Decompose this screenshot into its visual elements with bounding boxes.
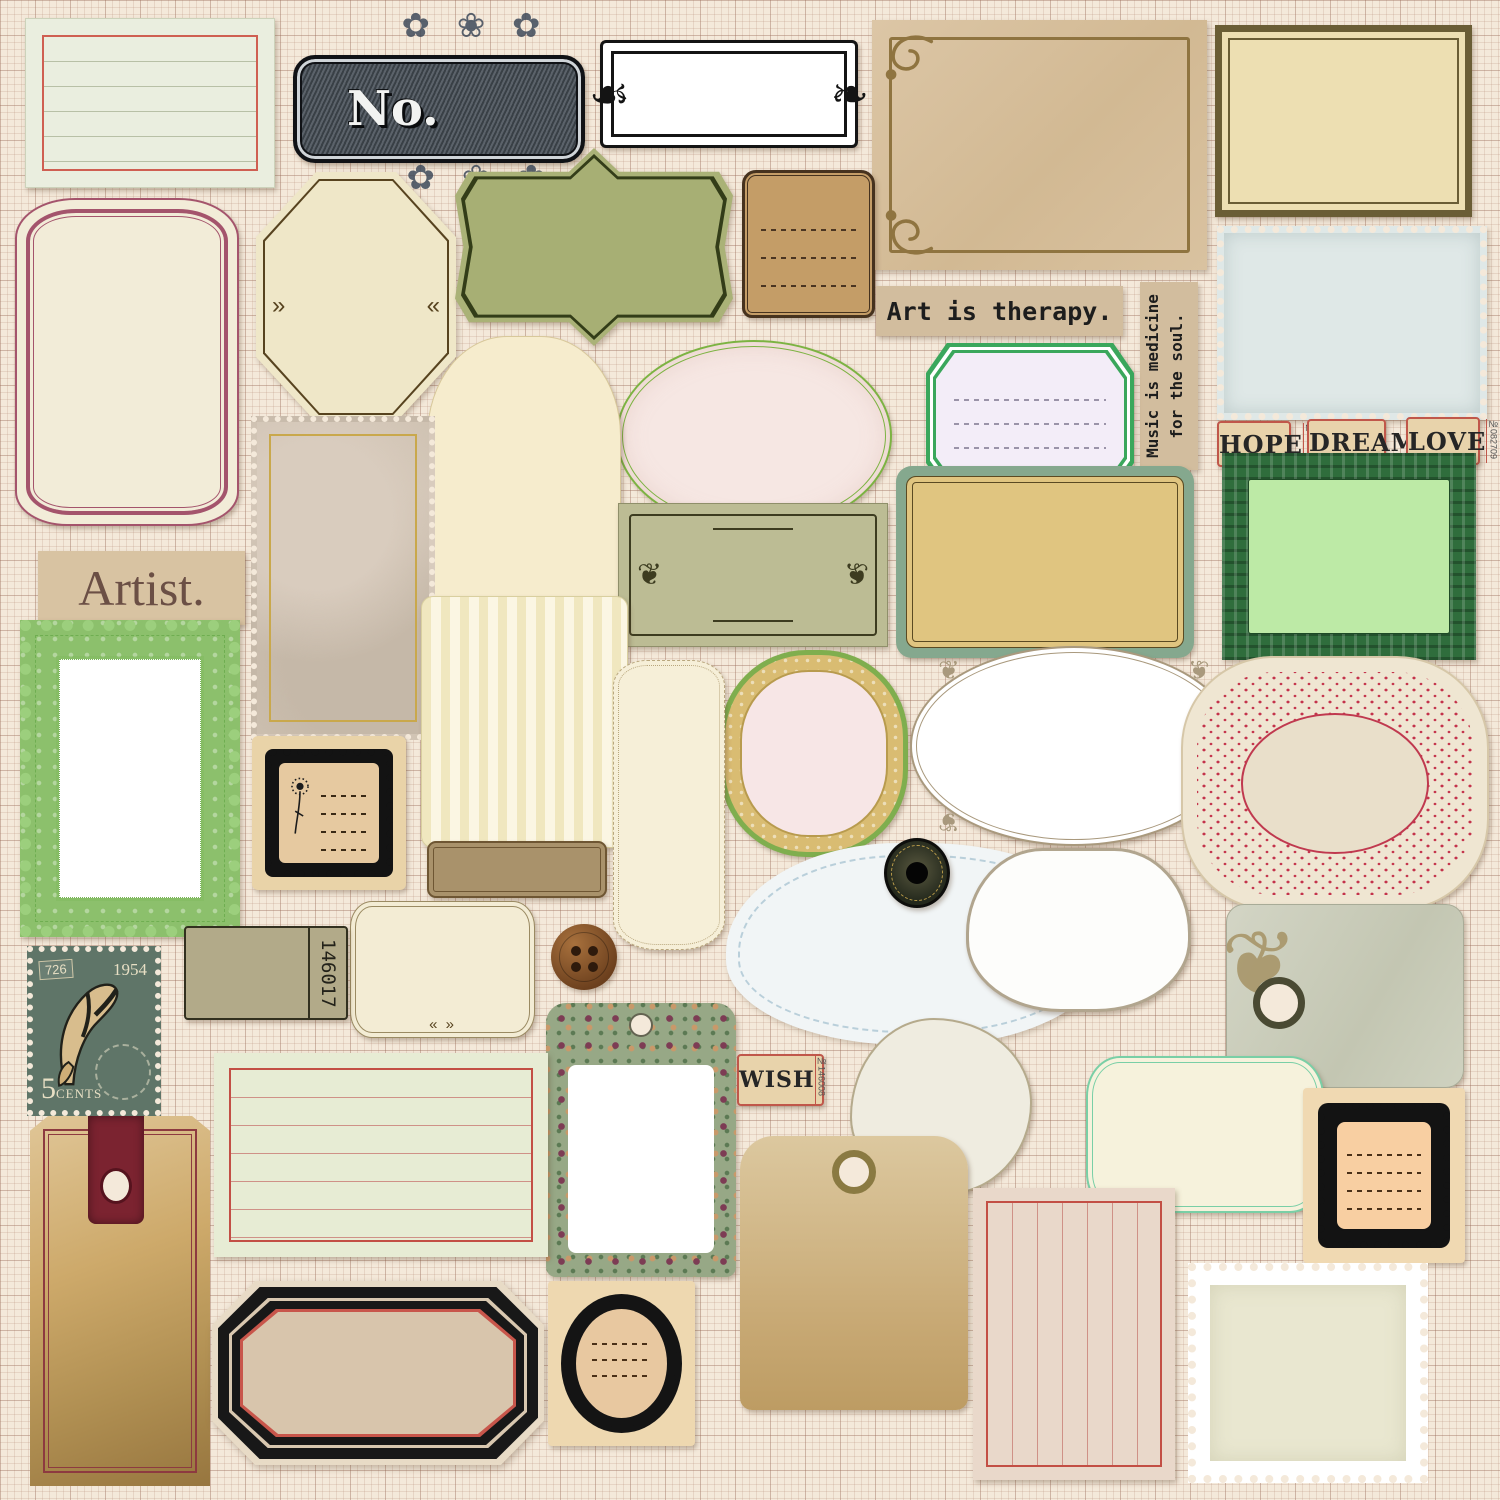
cream-label-dark-border [1215, 25, 1472, 217]
fleuron-icon: ❦ [637, 558, 662, 593]
wish-ticket: WISH №146008 [737, 1054, 824, 1106]
pink-center [740, 670, 888, 837]
dotted-line [321, 813, 369, 815]
dotted-line [1347, 1208, 1421, 1210]
lined-writing-area [42, 35, 258, 171]
maroon-bracket-frame [15, 198, 239, 526]
ornate-gold-pink-frame [720, 650, 908, 857]
stamp-value: 5 [41, 1072, 56, 1105]
sage-bracket-label [455, 148, 733, 346]
hexagon-label: » « [256, 172, 456, 422]
maroon-inner-border [26, 209, 228, 515]
corner-swirl-icon [884, 206, 936, 258]
lined-note-card [25, 18, 275, 188]
filigree-icon: ❦ [1188, 656, 1210, 686]
red-ruled-area [986, 1201, 1162, 1467]
music-quote-strip: Music is medicine for the soul. [1140, 282, 1198, 470]
arch-top-label [427, 336, 621, 610]
hexagon-center [265, 181, 447, 413]
dotted-line [321, 831, 369, 833]
rule-line [713, 620, 793, 622]
oval-center [1241, 713, 1430, 854]
white-shield-label [966, 848, 1191, 1012]
striped-paper-label [421, 596, 628, 848]
art-therapy-strip: Art is therapy. [876, 286, 1123, 336]
no-number-plate: No. [293, 55, 585, 163]
light-green-center [1248, 479, 1450, 634]
art-strip-text: Art is therapy. [887, 297, 1113, 326]
stamp-center [1210, 1285, 1406, 1461]
dashed-line [761, 285, 856, 287]
dotted-line [592, 1375, 651, 1377]
grommet [1253, 977, 1305, 1029]
button-hole [571, 962, 581, 972]
black-scallop-square-stamp [1303, 1088, 1465, 1263]
no-plate-label: No. [347, 81, 439, 137]
green-lined-paper [214, 1053, 548, 1257]
artist-strip: Artist. [38, 551, 245, 625]
green-banknote-label [1222, 453, 1476, 660]
scroll-flourish-icon: ☙ [589, 67, 630, 121]
ticket-word: LOVE [1408, 427, 1486, 456]
button-hole [588, 962, 598, 972]
lined-panel [1335, 1120, 1433, 1231]
artist-strip-text: Artist. [78, 559, 204, 617]
leather-strap [88, 1116, 144, 1224]
arrow-ornament-icon: » [272, 292, 285, 320]
vertical-lined-paper [973, 1188, 1175, 1480]
dotted-line [1347, 1172, 1421, 1174]
dashed-line [761, 257, 856, 259]
stamp-unit: CENTS [56, 1086, 102, 1101]
dotted-line [592, 1343, 651, 1345]
ticket-number: №146008 [815, 1056, 828, 1104]
green-lace-doily-frame [20, 620, 240, 937]
gold-inner-border [269, 434, 417, 722]
arrow-ornament-icon: « [427, 292, 440, 320]
black-octagon-frame [212, 1281, 544, 1465]
spool-hole [906, 862, 928, 884]
octagon-center [243, 1312, 513, 1434]
butterfly-postage-stamp: 726 1954 5CENTS [27, 946, 161, 1116]
music-strip-text: Music is medicine for the soul. [1141, 283, 1197, 469]
lined-oval-panel [576, 1309, 667, 1418]
fleuron-icon: ❦ [844, 558, 869, 593]
brown-bar-label [427, 841, 607, 898]
button-hole [571, 946, 581, 956]
strap-hole [100, 1168, 132, 1204]
thread-spool [884, 838, 950, 908]
grommet [832, 1150, 876, 1194]
kraft-card-swirl-frame [872, 20, 1207, 270]
dotted-line [1347, 1190, 1421, 1192]
ticket-word: WISH [739, 1067, 815, 1093]
dotted-line [954, 423, 1106, 425]
olive-number-ticket: 146017 [184, 926, 348, 1020]
dotted-line [954, 399, 1106, 401]
teal-gold-label [896, 466, 1194, 658]
dotted-line [321, 795, 369, 797]
dandelion-wood-stamp [252, 736, 406, 890]
blue-postage-stamp [1217, 226, 1487, 420]
postmark-icon [95, 1044, 151, 1100]
gold-center [906, 476, 1184, 648]
red-ruled-area [229, 1068, 533, 1242]
button-hole [588, 946, 598, 956]
tall-bracket-label [613, 660, 725, 950]
filigree-icon: ❦ [938, 656, 960, 686]
arrow-ornament-icon: « » [429, 1016, 456, 1033]
stamp-corner-number: 726 [38, 959, 73, 980]
dashed-line [761, 229, 856, 231]
kraft-postage-stamp [251, 416, 435, 740]
scroll-flourish-icon: ❧ [830, 67, 869, 121]
round-scallop-stamp [548, 1281, 695, 1446]
dotted-line [954, 447, 1106, 449]
octagon-lined-center [936, 353, 1124, 483]
scrapbook-sheet: { "palette": { "page_bg": "#f4e9da", "gr… [0, 0, 1500, 1500]
dotted-line [321, 849, 369, 851]
dandelion-icon [284, 772, 316, 844]
wooden-button [551, 924, 617, 990]
filigree-icon: ❦ [938, 806, 960, 836]
olive-flourish-ticket: ❦ ❦ [618, 503, 888, 647]
thin-border [629, 514, 877, 636]
aged-tag-red-strap [30, 1116, 210, 1486]
ticket-serial-number: 146017 [308, 928, 346, 1018]
corner-swirl-icon [884, 32, 936, 84]
rule-line [713, 528, 793, 530]
red-stitch-bracket-label [1181, 656, 1489, 911]
bracket-center [465, 158, 723, 336]
tag-hole [629, 1013, 653, 1037]
brown-label-dashed-lines [742, 170, 875, 318]
ticket-number: №082709 [1486, 419, 1499, 463]
dotted-line [1347, 1154, 1421, 1156]
floral-pattern-tag [546, 1003, 736, 1277]
floral-ornament-icon: ✿ ❀ ✿ [380, 6, 570, 58]
ornate-black-frame: ☙ ❧ [600, 40, 858, 148]
large-kraft-tag [740, 1136, 968, 1410]
white-center [568, 1065, 714, 1253]
blank-postage-stamp [1188, 1263, 1428, 1483]
stamp-year: 1954 [113, 960, 147, 980]
dotted-line [592, 1359, 651, 1361]
small-bracket-tag: « » [350, 901, 535, 1038]
white-photo-area [59, 659, 201, 898]
